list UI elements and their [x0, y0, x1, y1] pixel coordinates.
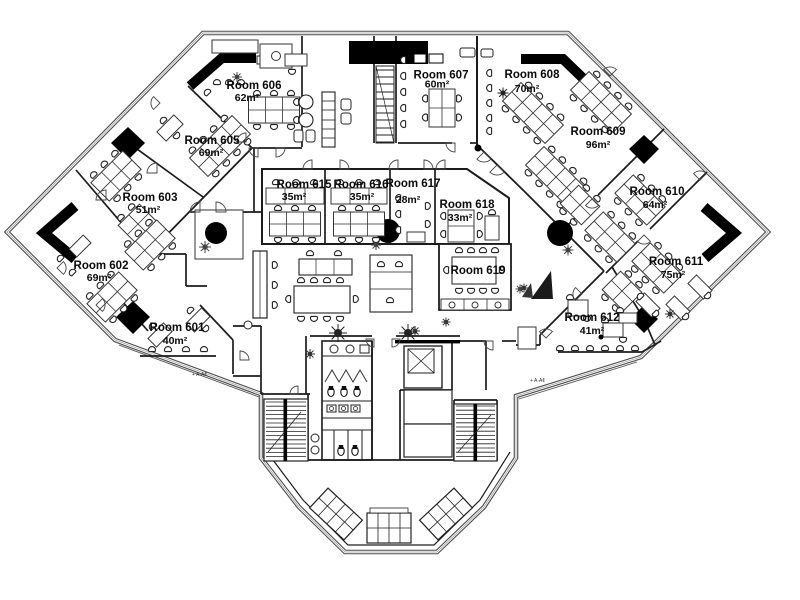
svg-text:Room 601: Room 601 [150, 322, 206, 334]
svg-text:Room 603: Room 603 [123, 192, 178, 204]
svg-text:41m²: 41m² [580, 325, 605, 337]
svg-text:Room 605: Room 605 [185, 135, 241, 147]
svg-text:40m²: 40m² [163, 335, 188, 347]
svg-text:Room 609: Room 609 [571, 126, 626, 138]
svg-text:75m²: 75m² [661, 269, 686, 281]
svg-text:62m²: 62m² [235, 92, 260, 104]
svg-text:Room 611: Room 611 [649, 256, 704, 268]
svg-text:69m²: 69m² [199, 147, 224, 159]
svg-text:+ A·A¢: + A·A¢ [192, 372, 207, 378]
svg-text:Room 606: Room 606 [227, 80, 282, 92]
svg-text:33m²: 33m² [448, 212, 473, 224]
svg-text:Room 617: Room 617 [386, 178, 441, 190]
svg-text:Room 612: Room 612 [565, 312, 620, 324]
svg-text:+ A·A¢: + A·A¢ [530, 378, 545, 384]
svg-text:96m²: 96m² [586, 139, 611, 151]
svg-text:35m²: 35m² [350, 191, 375, 203]
svg-text:Room 619: Room 619 [451, 265, 506, 277]
svg-text:69m²: 69m² [87, 272, 112, 284]
svg-text:Room 615: Room 615 [277, 179, 333, 191]
svg-text:Room 608: Room 608 [505, 69, 561, 81]
svg-text:Room 602: Room 602 [74, 260, 129, 272]
svg-text:70m²: 70m² [515, 83, 540, 95]
svg-text:28m²: 28m² [396, 194, 421, 206]
svg-text:51m²: 51m² [136, 204, 161, 216]
svg-text:Room 616: Room 616 [334, 179, 389, 191]
svg-text:60m²: 60m² [425, 79, 450, 91]
svg-text:Room 610: Room 610 [630, 186, 685, 198]
svg-text:Room 618: Room 618 [440, 199, 496, 211]
svg-text:35m²: 35m² [282, 191, 307, 203]
svg-text:64m²: 64m² [643, 199, 668, 211]
